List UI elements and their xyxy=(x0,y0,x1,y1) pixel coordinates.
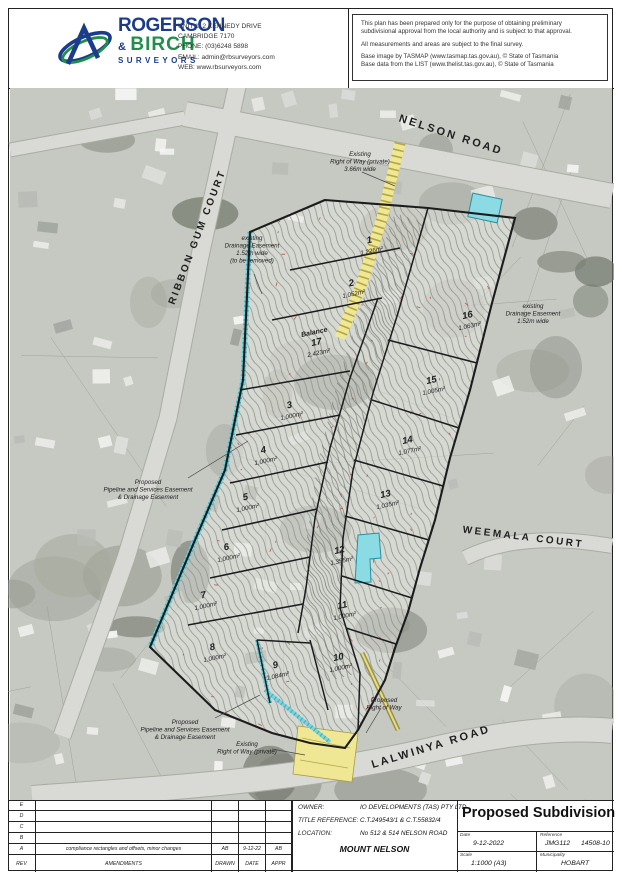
owner-label: OWNER: xyxy=(298,804,324,811)
revision-cell xyxy=(239,811,266,822)
location-label: LOCATION: xyxy=(298,830,332,837)
right-of-way-area xyxy=(293,726,358,782)
drawing-title-block: Proposed Subdivision Date 9-12-2022 Refe… xyxy=(457,800,614,872)
surveyor-address: UNIT 1, 2 KENNEDY DRIVE CAMBRIDGE 7170 P… xyxy=(178,22,343,73)
revision-cell: AMENDMENTS xyxy=(36,855,212,872)
owner-value: IO DEVELOPMENTS (TAS) PTY LTD xyxy=(360,804,467,811)
reference-number: 14508-10 xyxy=(581,840,610,847)
title-reference-label: TITLE REFERENCE: xyxy=(298,817,358,824)
date-label: Date xyxy=(460,833,470,838)
revision-cell xyxy=(36,822,212,833)
revision-cell: A xyxy=(8,844,36,855)
header-divider xyxy=(348,8,349,88)
scale-label: Scale xyxy=(460,853,472,858)
surveyor-logo-icon xyxy=(56,18,114,74)
address-line: EMAIL: admin@rbsurveyors.com xyxy=(178,53,343,63)
site-plan-map: 11,226m²21,052m²31,000m²41,000m²51,000m²… xyxy=(8,88,614,800)
revision-cell xyxy=(212,811,239,822)
revision-cell: DRAWN xyxy=(212,855,239,872)
location-value: No 512 & 514 NELSON ROAD xyxy=(360,830,447,837)
revision-cell: APPR xyxy=(266,855,292,872)
annotation-row_proposed: ProposedRight of Way xyxy=(366,697,402,712)
revision-cell xyxy=(212,833,239,844)
revision-cell xyxy=(36,811,212,822)
revision-cell: B xyxy=(8,833,36,844)
note-paragraph: Base data from the LIST (www.thelist.tas… xyxy=(361,61,599,69)
revision-cell xyxy=(212,822,239,833)
revision-cell xyxy=(266,822,292,833)
revision-cell xyxy=(212,800,239,811)
reference-job: JMG112 xyxy=(545,840,570,847)
drawing-title: Proposed Subdivision xyxy=(462,805,615,821)
revision-cell: C xyxy=(8,822,36,833)
logo-ampersand: & xyxy=(118,41,126,53)
revision-cell xyxy=(266,811,292,822)
revision-cell: AB xyxy=(212,844,239,855)
address-line: UNIT 1, 2 KENNEDY DRIVE xyxy=(178,22,343,32)
revision-cell xyxy=(239,833,266,844)
revision-cell xyxy=(239,822,266,833)
revision-cell: E xyxy=(8,800,36,811)
revision-cell xyxy=(239,800,266,811)
address-line: WEB: www.rbsurveyors.com xyxy=(178,63,343,73)
note-paragraph: This plan has been prepared only for the… xyxy=(361,20,599,37)
revision-cell: compliance rectangles and offsets, minor… xyxy=(36,844,212,855)
plan-notes-box: This plan has been prepared only for the… xyxy=(352,14,608,81)
scale-value: 1:1000 (A3) xyxy=(471,860,507,867)
address-line: PHONE: (03)6248 5898 xyxy=(178,42,343,52)
reference-label: Reference xyxy=(540,833,562,838)
municipality-label: Municipality xyxy=(540,853,565,858)
address-line: CAMBRIDGE 7170 xyxy=(178,32,343,42)
revision-cell: D xyxy=(8,811,36,822)
title-reference-value: C.T.249543/1 & C.T.55832/4 xyxy=(360,817,441,824)
revision-table: EDCBAcompliance rectangles and offsets, … xyxy=(8,800,292,872)
revision-cell: DATE xyxy=(239,855,266,872)
revision-cell xyxy=(36,800,212,811)
revision-cell: 9-12-22 xyxy=(239,844,266,855)
revision-cell xyxy=(266,833,292,844)
note-paragraph: All measurements and areas are subject t… xyxy=(361,41,599,49)
revision-cell xyxy=(266,800,292,811)
note-paragraph: Base image by TASMAP (www.tasmap.tas.gov… xyxy=(361,53,599,61)
revision-cell: REV xyxy=(8,855,36,872)
owner-block: OWNER: IO DEVELOPMENTS (TAS) PTY LTD TIT… xyxy=(292,800,457,872)
titleblock-rule xyxy=(536,831,537,872)
revision-cell: AB xyxy=(266,844,292,855)
revision-cell xyxy=(36,833,212,844)
date-value: 9-12-2022 xyxy=(473,840,504,847)
plan-sheet: ROGERSON & BIRCH SURVEYORS UNIT 1, 2 KEN… xyxy=(0,0,622,880)
locality-name: MOUNT NELSON xyxy=(292,844,457,854)
municipality-value: HOBART xyxy=(561,860,589,867)
